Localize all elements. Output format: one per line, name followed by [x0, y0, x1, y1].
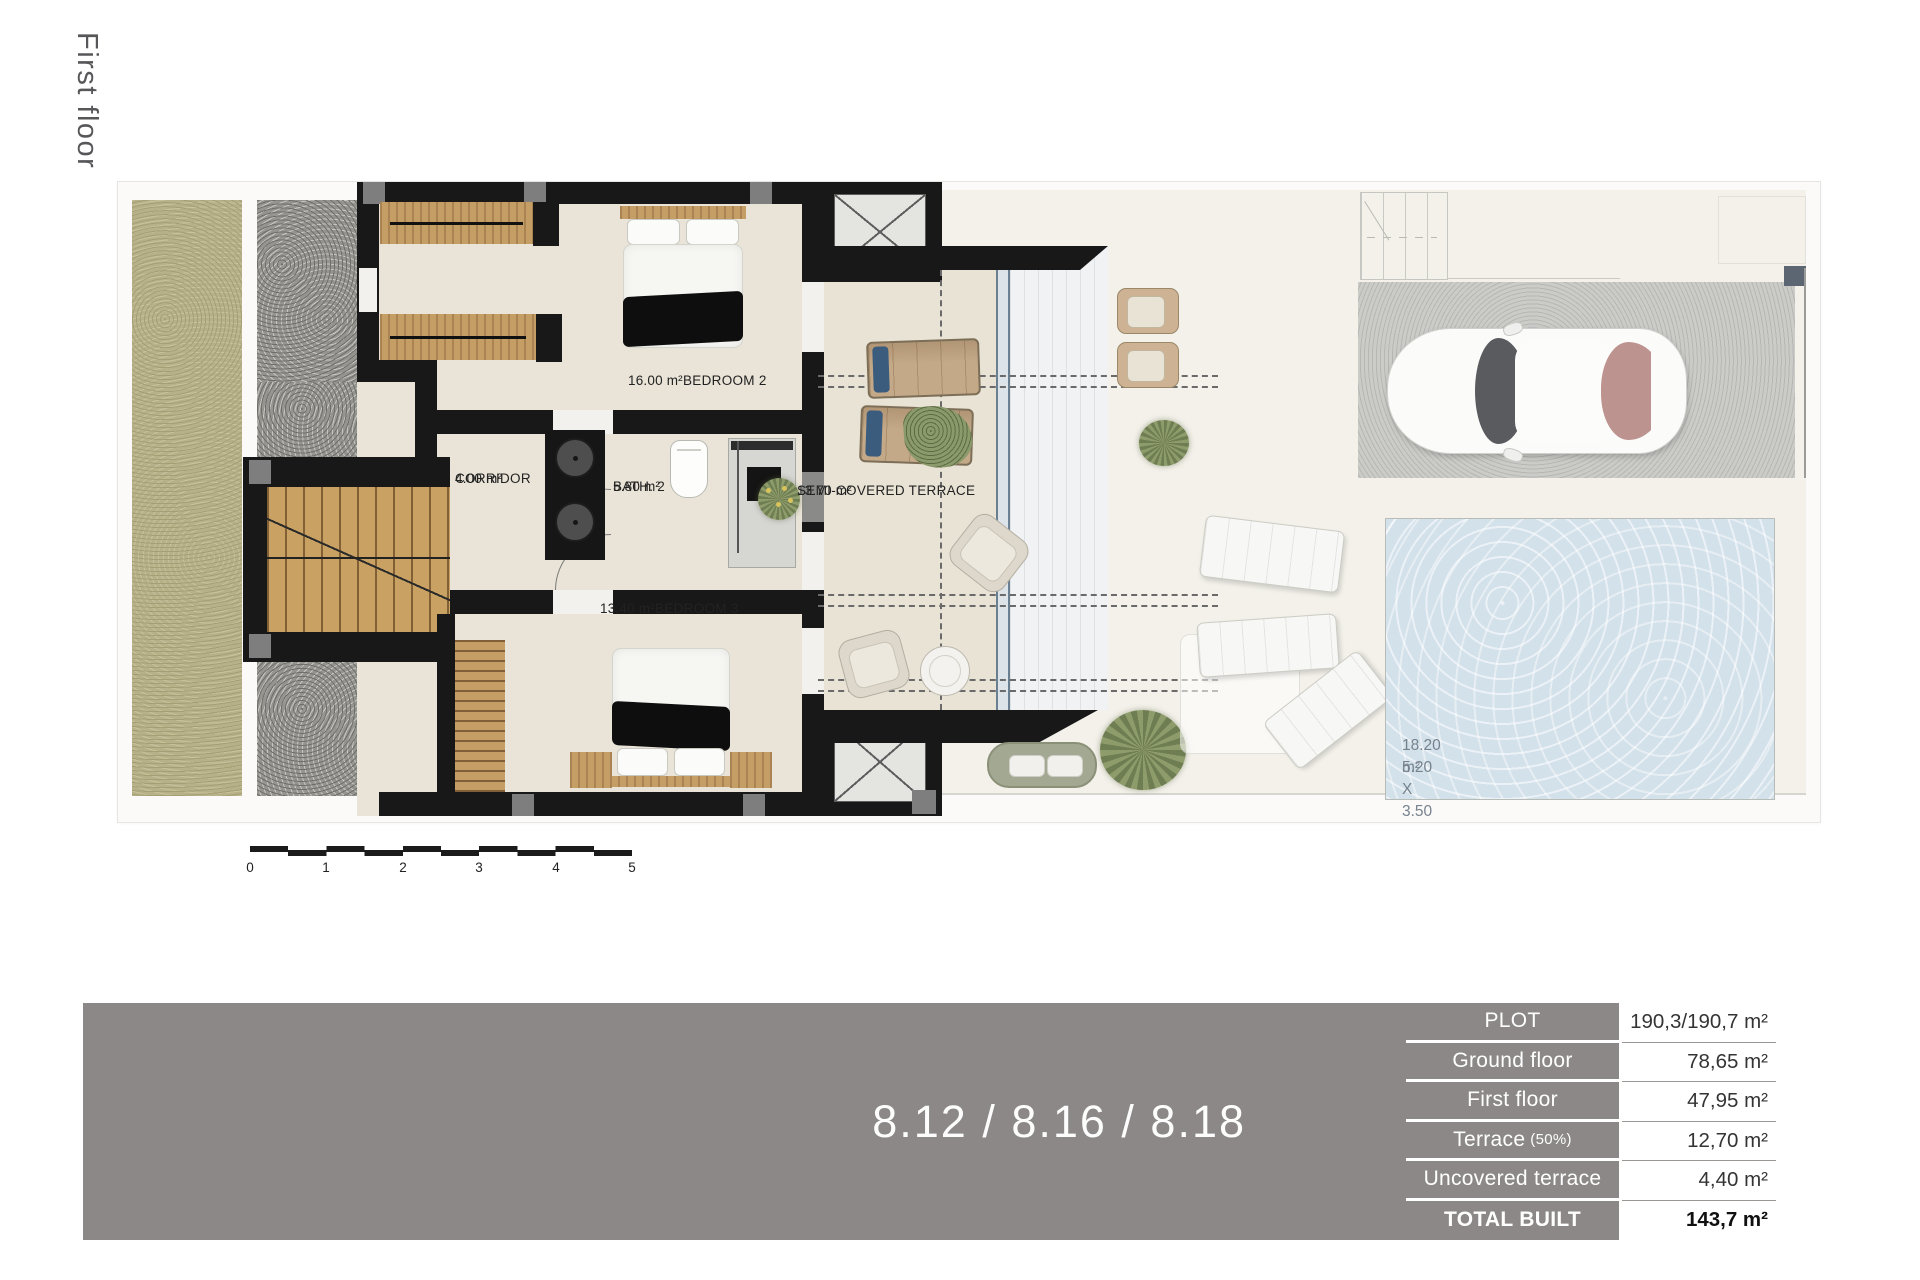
wall-bedroom3-left [437, 614, 455, 792]
outdoor-sofa [987, 742, 1097, 788]
row-label: First floor [1406, 1082, 1622, 1122]
wall-cap [249, 634, 271, 658]
scale-tick: 4 [546, 860, 566, 875]
utility-box [1784, 266, 1806, 286]
wall-cap [743, 794, 765, 816]
uncovered-terrace-deck [1010, 246, 1108, 710]
boundary-line [1448, 278, 1620, 279]
wall-cap [363, 182, 385, 204]
row-value: 4,40 m² [1622, 1161, 1776, 1201]
window-left [359, 268, 377, 312]
bed-bedroom3 [610, 646, 732, 788]
table-row: Terrace (50%) 12,70 m² [1406, 1122, 1776, 1162]
wall-cap [750, 182, 772, 204]
row-value: 47,95 m² [1622, 1082, 1776, 1122]
page: { "page": { "floor_label": "First floor"… [0, 0, 1920, 1280]
sun-lounger [859, 405, 974, 466]
scale-bar: 0 1 2 3 4 5 [250, 846, 632, 886]
wall-stairs-bottom [243, 632, 450, 662]
scale-tick: 2 [393, 860, 413, 875]
grass-plant [1139, 420, 1189, 466]
sink [555, 438, 595, 478]
pool-water [1386, 519, 1774, 799]
area-table: PLOT 190,3/190,7 m² Ground floor 78,65 m… [1406, 1003, 1776, 1240]
sun-lounger [866, 338, 981, 399]
wall-left-lower [415, 382, 437, 458]
scale-tick: 5 [622, 860, 642, 875]
row-label: Uncovered terrace [1406, 1161, 1622, 1201]
roof-projection-line [818, 594, 1218, 596]
sink [555, 502, 595, 542]
patio-chair [1117, 342, 1179, 388]
gravel-area-top [257, 200, 357, 384]
row-value: 78,65 m² [1622, 1043, 1776, 1083]
potted-plant [758, 478, 800, 520]
table-row: First floor 47,95 m² [1406, 1082, 1776, 1122]
roof-projection-line [818, 605, 1218, 607]
patio-chair [1117, 288, 1179, 334]
row-label-note: (50%) [1530, 1131, 1572, 1148]
boundary-wall [1804, 268, 1806, 478]
table-row: PLOT 190,3/190,7 m² [1406, 1003, 1776, 1043]
car [1387, 328, 1687, 454]
window-bath [802, 532, 824, 590]
staircase [267, 487, 450, 632]
wardrobe [380, 314, 536, 360]
row-label: Ground floor [1406, 1043, 1622, 1083]
row-value: 190,3/190,7 m² [1622, 1003, 1776, 1043]
wall-cap [912, 790, 936, 814]
slatted-unit [455, 640, 505, 792]
wall-cap [249, 460, 271, 484]
grass-plant [1100, 710, 1186, 790]
table-row: Ground floor 78,65 m² [1406, 1043, 1776, 1083]
wall-stairs-top [243, 457, 450, 487]
scale-tick: 3 [469, 860, 489, 875]
nightstand [570, 752, 612, 788]
row-label: PLOT [1406, 1003, 1622, 1043]
wall-step [357, 360, 437, 382]
grass-strip [132, 200, 242, 796]
scale-tick: 1 [316, 860, 336, 875]
patio-tile-outline [1718, 196, 1806, 264]
nightstand [730, 752, 772, 788]
row-label: TOTAL BUILT [1406, 1201, 1622, 1241]
wall-terrace-top [802, 246, 1108, 270]
car-roof [1515, 340, 1615, 442]
window-bedroom3 [802, 628, 824, 694]
scale-bar-segments [250, 851, 632, 856]
pool: 18.20 m² 5.20 X 3.50 [1385, 518, 1775, 800]
wall-stub [536, 314, 562, 362]
wall-stub [533, 202, 559, 246]
window-bedroom2 [802, 282, 824, 352]
row-label: Terrace (50%) [1406, 1122, 1622, 1162]
bed-bedroom2 [620, 206, 746, 348]
table-row-total: TOTAL BUILT 143,7 m² [1406, 1201, 1776, 1241]
footer-banner: 8.12 / 8.16 / 8.18 [83, 1003, 1406, 1240]
wardrobe [380, 202, 533, 244]
wall-bedroom2-bottom [437, 410, 824, 434]
pool-lounger [1196, 613, 1339, 678]
row-value: 143,7 m² [1622, 1201, 1776, 1241]
round-table [920, 646, 970, 696]
row-value: 12,70 m² [1622, 1122, 1776, 1162]
exterior-stairs [1360, 192, 1448, 280]
floor-plan: 18.20 m² 5.20 X 3.50 BEDROOM 2 16.00 m² … [118, 182, 1820, 822]
floor-title: First floor [70, 32, 103, 169]
table-row: Uncovered terrace 4,40 m² [1406, 1161, 1776, 1201]
unit-numbers: 8.12 / 8.16 / 8.18 [872, 1096, 1246, 1148]
pool-dimensions: 5.20 X 3.50 [1402, 757, 1432, 823]
scale-tick: 0 [240, 860, 260, 875]
glass-railing [996, 246, 1010, 710]
wall-cap [524, 182, 546, 204]
wall-cap [512, 794, 534, 816]
toilet [670, 440, 708, 498]
